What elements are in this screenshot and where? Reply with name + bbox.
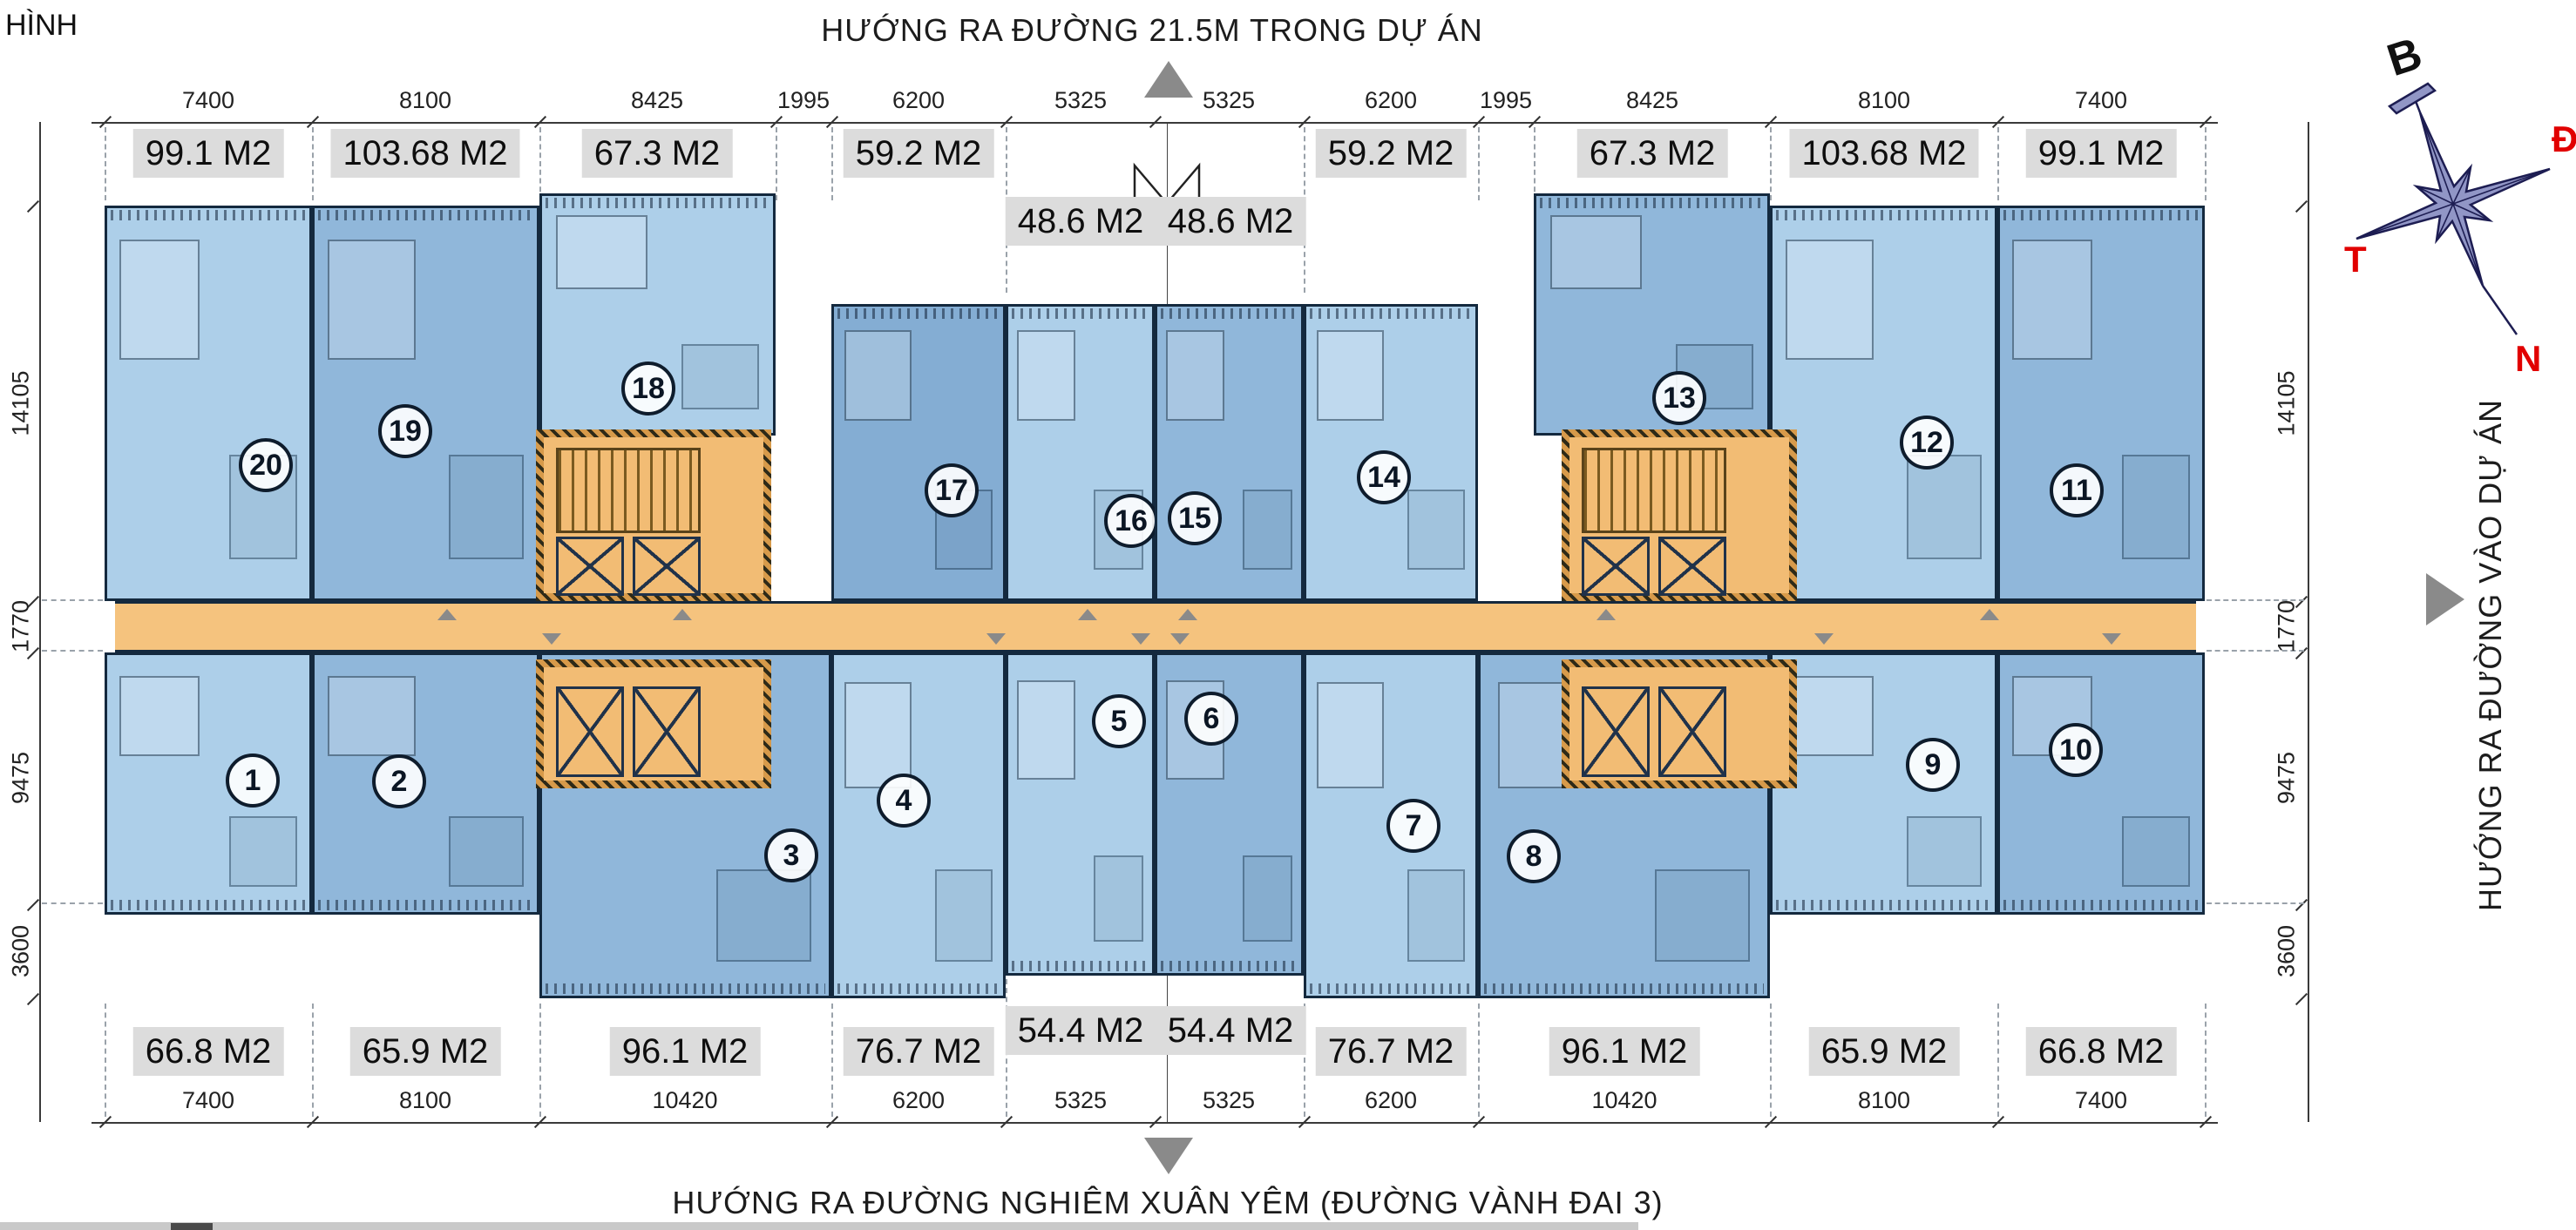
unit-area-label: 54.4 M2 [1156, 1006, 1306, 1055]
unit-number-badge: 1 [226, 754, 280, 808]
door-marker-icon [1170, 633, 1190, 645]
guide-line [42, 650, 103, 652]
dimension-value: 1995 [1480, 87, 1532, 114]
apartment-unit: 16 [1006, 304, 1155, 601]
dimension-line-right [2308, 122, 2309, 1122]
room-outline [1243, 490, 1292, 569]
guide-line [42, 599, 103, 601]
elevator [633, 686, 701, 777]
unit-area-label: 59.2 M2 [1316, 129, 1467, 178]
unit-area-label: 103.68 M2 [330, 129, 519, 178]
core-lift-right [1562, 659, 1797, 788]
room-outline [1317, 682, 1385, 787]
dimension-value: 9475 [2274, 752, 2301, 804]
apartment-unit: 15 [1155, 304, 1304, 601]
dimension-value: 7400 [182, 87, 234, 114]
guide-line [312, 127, 314, 200]
apartment-unit: 2 [312, 652, 539, 915]
guide-line [1997, 127, 1999, 200]
dimension-value: 9475 [8, 752, 35, 804]
room-outline [449, 816, 524, 887]
unit-number-badge: 10 [2049, 723, 2103, 777]
apartment-unit: 10 [1997, 652, 2205, 915]
dimension-value: 1770 [8, 600, 35, 652]
unit-area-label: 48.6 M2 [1006, 197, 1156, 246]
dimension-value: 10420 [1591, 1087, 1657, 1114]
unit-number-badge: 13 [1652, 371, 1706, 425]
core-lift-left [536, 659, 771, 788]
room-outline [681, 344, 759, 409]
guide-line [539, 127, 541, 200]
unit-number-badge: 9 [1906, 738, 1960, 792]
door-marker-icon [673, 609, 692, 620]
room-outline [2012, 240, 2092, 360]
room-outline [229, 816, 297, 887]
elevator [556, 686, 624, 777]
elevator [556, 537, 624, 596]
apartment-unit: 19 [312, 206, 539, 601]
guide-line [776, 127, 777, 200]
unit-area-label: 48.6 M2 [1156, 197, 1306, 246]
unit-number-badge: 17 [925, 463, 979, 517]
dimension-value: 7400 [182, 1087, 234, 1114]
unit-number-badge: 14 [1357, 450, 1411, 504]
room-outline [1094, 855, 1143, 942]
south-road-arrow-icon [1144, 1138, 1193, 1174]
dimension-value: 14105 [8, 370, 35, 436]
room-outline [2122, 455, 2190, 559]
core-floor [544, 667, 763, 781]
room-outline [449, 455, 524, 559]
door-marker-icon [1078, 609, 1097, 620]
unit-area-label: 65.9 M2 [350, 1027, 501, 1076]
unit-number-badge: 4 [877, 774, 931, 828]
unit-number-badge: 19 [378, 404, 432, 458]
unit-number-badge: 18 [621, 362, 675, 416]
guide-line [831, 127, 833, 200]
compass-west-letter: T [2344, 239, 2367, 280]
unit-area-label: 59.2 M2 [844, 129, 994, 178]
room-outline [328, 240, 416, 360]
dimension-value: 1770 [2274, 600, 2301, 652]
dimension-value: 8100 [399, 1087, 451, 1114]
dimension-value: 8100 [1858, 87, 1910, 114]
room-outline [1407, 490, 1465, 569]
dimension-value: 8100 [1858, 1087, 1910, 1114]
dimension-value: 10420 [652, 1087, 717, 1114]
guide-line [1770, 127, 1772, 200]
room-outline [844, 682, 912, 787]
unit-area-label: 67.3 M2 [582, 129, 733, 178]
east-road-arrow-icon [2426, 573, 2464, 625]
unit-number-badge: 3 [764, 828, 818, 882]
door-marker-icon [437, 609, 457, 620]
dimension-value: 3600 [2274, 925, 2301, 977]
corridor [115, 601, 2196, 652]
unit-area-label: 96.1 M2 [610, 1027, 761, 1076]
core-stair-left [536, 429, 771, 601]
unit-area-label: 99.1 M2 [133, 129, 284, 178]
guide-line [1478, 1004, 1480, 1117]
unit-number-badge: 12 [1900, 416, 1954, 470]
unit-area-label: 65.9 M2 [1809, 1027, 1960, 1076]
north-road-arrow-icon [1144, 61, 1193, 98]
elevator [1658, 686, 1726, 777]
direction-label-bottom: HƯỚNG RA ĐƯỜNG NGHIÊM XUÂN YÊM (ĐƯỜNG VÀ… [672, 1185, 1663, 1221]
room-outline [328, 676, 416, 757]
room-outline [1786, 676, 1874, 757]
staircase [1582, 448, 1726, 533]
dimension-value: 8425 [631, 87, 683, 114]
guide-line [1478, 127, 1480, 200]
compass-rose: B Đ T N [2344, 21, 2576, 395]
dimension-value: 8425 [1626, 87, 1678, 114]
room-outline [1550, 215, 1642, 290]
core-floor [1569, 667, 1789, 781]
room-outline [1786, 240, 1874, 360]
room-outline [119, 676, 200, 757]
apartment-unit: 1 [105, 652, 312, 915]
dimension-value: 5325 [1203, 87, 1255, 114]
room-outline [716, 869, 811, 962]
unit-number-badge: 16 [1104, 494, 1158, 548]
unit-number-badge: 6 [1184, 692, 1238, 746]
floor-plan-canvas: HÌNH HƯỚNG RA ĐƯỜNG 21.5M TRONG DỰ ÁN HƯ… [0, 0, 2576, 1230]
apartment-unit: 11 [1997, 206, 2205, 601]
dimension-value: 14105 [2274, 370, 2301, 436]
door-marker-icon [1980, 609, 1999, 620]
unit-area-label: 66.8 M2 [2026, 1027, 2177, 1076]
page-title-fragment: HÌNH [5, 9, 78, 43]
dimension-value: 8100 [399, 87, 451, 114]
tick [27, 993, 39, 1005]
room-outline [1907, 816, 1982, 887]
direction-label-right: HƯỚNG RA ĐƯỜNG VÀO DỰ ÁN [2472, 399, 2509, 911]
dimension-value: 6200 [892, 1087, 945, 1114]
unit-area-label: 67.3 M2 [1577, 129, 1728, 178]
apartment-unit: 18 [539, 193, 776, 436]
guide-line [1997, 1004, 1999, 1117]
compass-north-letter: B [2382, 28, 2429, 86]
door-marker-icon [542, 633, 561, 645]
tick [2295, 200, 2308, 213]
apartment-unit: 14 [1304, 304, 1478, 601]
compass-star-shape [2356, 112, 2550, 286]
elevator [1658, 537, 1726, 596]
core-stair-right [1562, 429, 1797, 601]
apartment-unit: 20 [105, 206, 312, 601]
direction-label-top: HƯỚNG RA ĐƯỜNG 21.5M TRONG DỰ ÁN [821, 12, 1482, 49]
room-outline [1166, 330, 1224, 422]
room-outline [2122, 816, 2190, 887]
room-outline [935, 869, 993, 962]
door-marker-icon [1814, 633, 1834, 645]
guide-line [1770, 1004, 1772, 1117]
door-marker-icon [1178, 609, 1197, 620]
compass-south-letter: N [2515, 338, 2541, 379]
apartment-unit: 9 [1770, 652, 1997, 915]
unit-number-badge: 15 [1168, 491, 1222, 545]
unit-number-badge: 7 [1386, 799, 1441, 853]
core-floor [544, 437, 763, 593]
unit-area-label: 54.4 M2 [1006, 1006, 1156, 1055]
door-marker-icon [2102, 633, 2121, 645]
room-outline [119, 240, 200, 360]
apartment-unit: 4 [831, 652, 1006, 998]
apartment-unit: 6 [1155, 652, 1304, 976]
room-outline [1017, 330, 1075, 422]
tick [27, 200, 39, 213]
unit-number-badge: 8 [1507, 829, 1561, 883]
unit-number-badge: 20 [239, 438, 293, 492]
apartment-unit: 13 [1534, 193, 1770, 436]
apartment-unit: 5 [1006, 652, 1155, 976]
guide-line [312, 1004, 314, 1117]
elevator [633, 537, 701, 596]
room-outline [1907, 455, 1982, 559]
staircase [556, 448, 701, 533]
apartment-unit: 7 [1304, 652, 1478, 998]
dimension-value: 3600 [8, 925, 35, 977]
dimension-value: 7400 [2075, 87, 2127, 114]
dimension-value: 5325 [1203, 1087, 1255, 1114]
tick [2295, 993, 2308, 1005]
bottom-edge-mark [171, 1223, 213, 1230]
dimension-value: 6200 [1365, 87, 1417, 114]
room-outline [1407, 869, 1465, 962]
unit-area-label: 76.7 M2 [844, 1027, 994, 1076]
guide-line [2205, 1004, 2207, 1117]
compass-east-letter: Đ [2552, 118, 2576, 159]
guide-line [539, 1004, 541, 1117]
room-outline [1317, 330, 1385, 422]
dimension-value: 7400 [2075, 1087, 2127, 1114]
dimension-line-left [39, 122, 41, 1122]
dimension-value: 6200 [1365, 1087, 1417, 1114]
unit-area-label: 103.68 M2 [1789, 129, 1978, 178]
dimension-value: 6200 [892, 87, 945, 114]
guide-line [105, 127, 106, 200]
unit-number-badge: 2 [372, 754, 426, 808]
apartment-unit: 12 [1770, 206, 1997, 601]
room-outline [844, 330, 912, 422]
room-outline [556, 215, 647, 290]
dimension-value: 1995 [777, 87, 830, 114]
bottom-edge-strip [0, 1222, 1638, 1230]
dimension-value: 5325 [1054, 87, 1107, 114]
room-outline [1017, 680, 1075, 780]
door-marker-icon [1131, 633, 1150, 645]
compass-north-flag [2390, 84, 2435, 113]
unit-area-label: 66.8 M2 [133, 1027, 284, 1076]
unit-area-label: 76.7 M2 [1316, 1027, 1467, 1076]
unit-number-badge: 11 [2050, 463, 2104, 517]
door-marker-icon [986, 633, 1006, 645]
guide-line [1534, 127, 1535, 200]
guide-line [831, 1004, 833, 1117]
core-floor [1569, 437, 1789, 593]
apartment-unit: 17 [831, 304, 1006, 601]
guide-line [105, 1004, 106, 1117]
guide-line [42, 902, 103, 904]
tick [2295, 899, 2308, 911]
unit-area-label: 99.1 M2 [2026, 129, 2177, 178]
room-outline [1243, 855, 1292, 942]
elevator [1582, 686, 1650, 777]
dimension-value: 5325 [1054, 1087, 1107, 1114]
elevator [1582, 537, 1650, 596]
room-outline [1655, 869, 1750, 962]
tick [27, 899, 39, 911]
unit-area-label: 96.1 M2 [1549, 1027, 1700, 1076]
unit-number-badge: 5 [1092, 694, 1146, 748]
guide-line [2205, 127, 2207, 200]
door-marker-icon [1596, 609, 1616, 620]
guide-line [2207, 902, 2304, 904]
